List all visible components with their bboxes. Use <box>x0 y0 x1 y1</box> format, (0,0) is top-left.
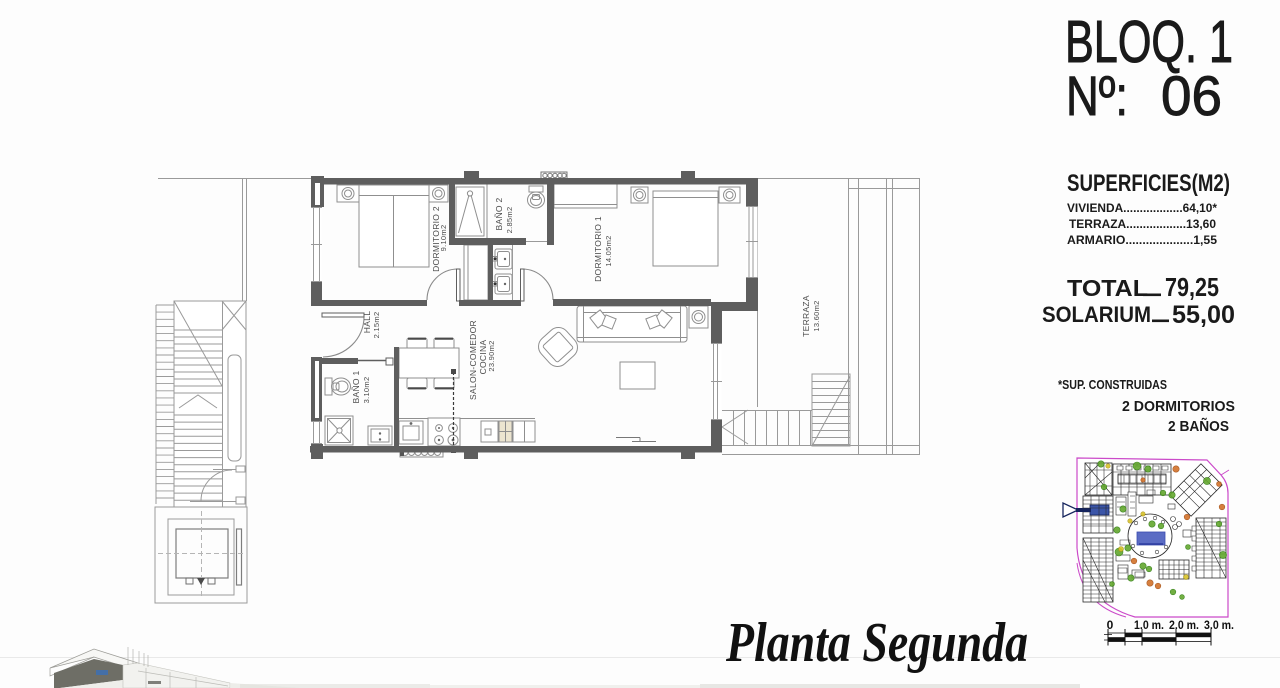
svg-text:2.0 m.: 2.0 m. <box>1169 618 1199 632</box>
svg-text:2.15m2: 2.15m2 <box>372 312 381 339</box>
svg-text:TERRAZA: TERRAZA <box>801 295 811 337</box>
svg-text:55,00: 55,00 <box>1172 301 1235 329</box>
svg-text:SOLARIUM: SOLARIUM <box>1042 302 1151 327</box>
svg-text:3.10m2: 3.10m2 <box>362 377 371 404</box>
svg-text:TOTAL: TOTAL <box>1067 275 1148 301</box>
svg-text:HALL: HALL <box>362 311 372 333</box>
svg-text:06: 06 <box>1161 64 1222 127</box>
svg-text:14.05m2: 14.05m2 <box>604 235 613 266</box>
svg-text:13.60m2: 13.60m2 <box>812 300 821 331</box>
svg-text:*SUP. CONSTRUIDAS: *SUP. CONSTRUIDAS <box>1058 378 1167 392</box>
svg-text:1.0 m.: 1.0 m. <box>1134 618 1164 632</box>
svg-text:SUPERFICIES(M2): SUPERFICIES(M2) <box>1067 170 1230 197</box>
svg-text:BAÑO 2: BAÑO 2 <box>494 198 504 231</box>
svg-text:Nº:: Nº: <box>1066 64 1128 127</box>
svg-text:TERRAZA..................13,60: TERRAZA..................13,60 <box>1069 217 1216 231</box>
svg-text:2 BAÑOS: 2 BAÑOS <box>1168 417 1229 435</box>
svg-text:VIVIENDA..................64,1: VIVIENDA..................64,10* <box>1067 201 1217 215</box>
svg-text:3.0 m.: 3.0 m. <box>1204 618 1234 632</box>
svg-text:ARMARIO....................1,5: ARMARIO....................1,55 <box>1067 233 1217 247</box>
svg-text:DORMITORIO 1: DORMITORIO 1 <box>593 216 603 282</box>
svg-text:9.10m2: 9.10m2 <box>439 225 448 252</box>
svg-text:SALON-COMEDOR: SALON-COMEDOR <box>468 320 478 400</box>
svg-text:2 DORMITORIOS: 2 DORMITORIOS <box>1122 398 1235 415</box>
svg-text:BAÑO 1: BAÑO 1 <box>351 371 361 404</box>
svg-text:79,25: 79,25 <box>1165 272 1219 302</box>
svg-text:2.85m2: 2.85m2 <box>505 207 514 234</box>
svg-text:Planta Segunda: Planta Segunda <box>725 612 1028 674</box>
svg-text:23.90m2: 23.90m2 <box>487 340 496 371</box>
